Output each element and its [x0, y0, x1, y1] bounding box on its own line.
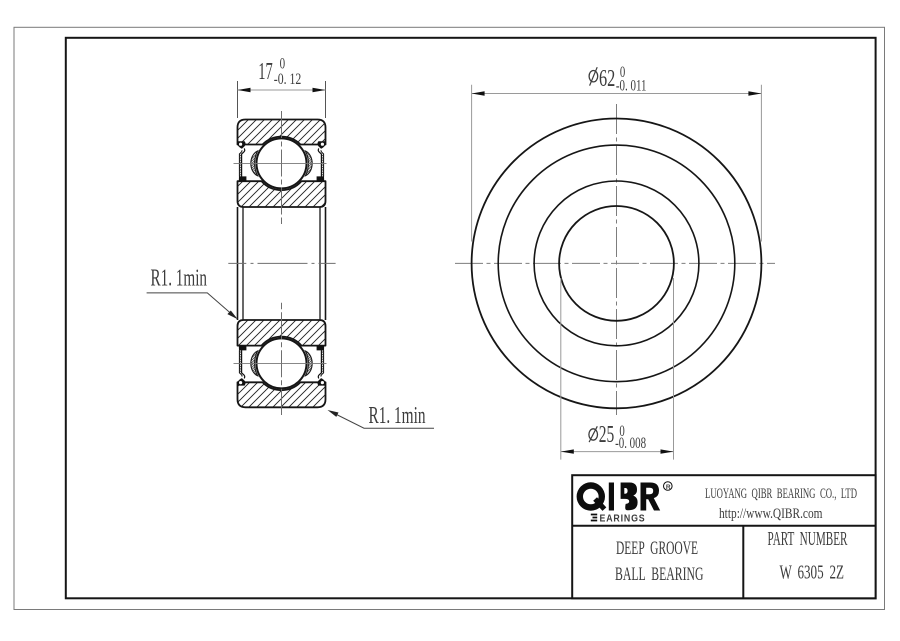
- svg-text:-0. 011: -0. 011: [616, 78, 647, 95]
- svg-text:62: 62: [599, 65, 615, 92]
- svg-text:BALL BEARING: BALL BEARING: [615, 564, 704, 585]
- svg-text:0: 0: [280, 55, 286, 72]
- svg-text:EARINGS: EARINGS: [600, 512, 646, 524]
- svg-text:-0. 12: -0. 12: [274, 71, 302, 88]
- svg-text:17: 17: [258, 58, 273, 85]
- svg-text:http://www.QIBR.com: http://www.QIBR.com: [719, 506, 823, 522]
- svg-text:R1. 1min: R1. 1min: [369, 403, 426, 429]
- svg-text:W 6305 2Z: W 6305 2Z: [780, 562, 845, 584]
- svg-text:LUOYANG QIBR BEARING CO., LTD: LUOYANG QIBR BEARING CO., LTD: [705, 486, 857, 502]
- svg-text:R1. 1min: R1. 1min: [151, 265, 208, 291]
- svg-text:PART NUMBER: PART NUMBER: [768, 528, 848, 550]
- svg-text:R: R: [666, 484, 671, 491]
- svg-text:DEEP GROOVE: DEEP GROOVE: [616, 538, 698, 559]
- svg-text:25: 25: [599, 421, 615, 448]
- svg-text:-0. 008: -0. 008: [615, 435, 646, 452]
